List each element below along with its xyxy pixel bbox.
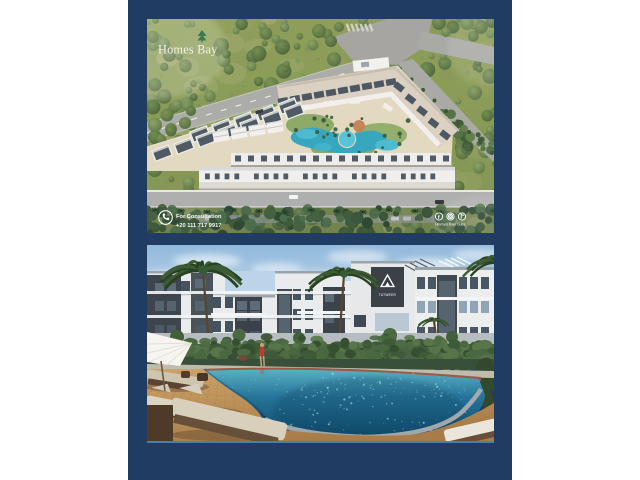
svg-text:For Consultation: For Consultation: [176, 214, 222, 220]
svg-text:TATWEER: TATWEER: [379, 293, 397, 297]
svg-text:Homes Bay: Homes Bay: [158, 43, 218, 57]
svg-text:f: f: [438, 215, 440, 221]
svg-text:Homes Bay Gate: Homes Bay Gate: [435, 222, 466, 227]
svg-text:+20 111 717 9917: +20 111 717 9917: [176, 223, 221, 229]
